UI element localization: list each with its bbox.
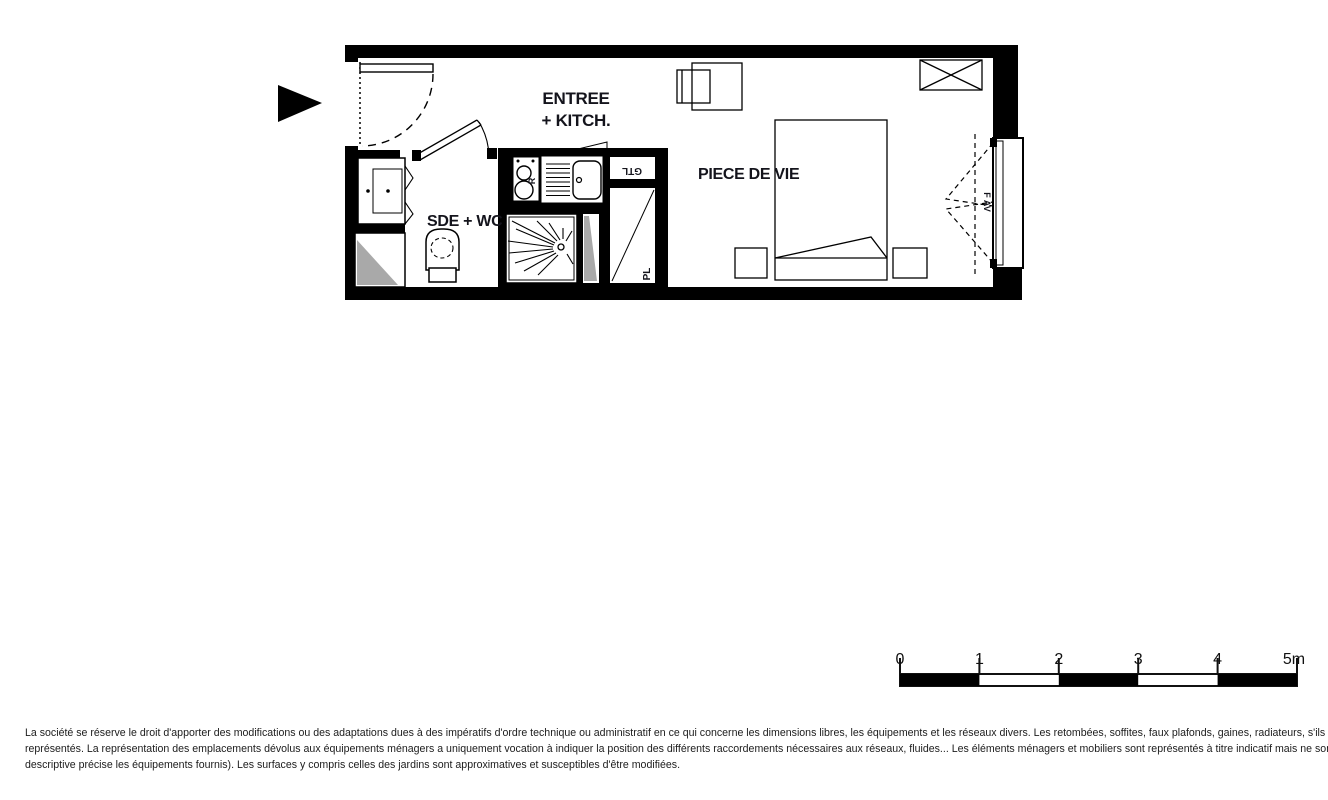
entry-door-swing-arc [362, 74, 433, 146]
disclaimer-line-1: La société se réserve le droit d'apporte… [25, 726, 1285, 742]
scale-bar-ticks [900, 658, 1297, 675]
vanity-tap-right [386, 189, 390, 193]
wardrobe-crossed-box [920, 60, 982, 90]
scale-num-1: 1 [975, 651, 984, 668]
shower-tray [506, 214, 577, 283]
sink-basin [573, 161, 601, 199]
entry-door-leaf [360, 64, 433, 72]
wall-right-upper [993, 45, 1018, 138]
label-entree-line1: ENTREE [542, 89, 609, 108]
window-frame [993, 138, 1023, 268]
wall-under-vanity-bar [355, 224, 405, 233]
scale-num-3: 3 [1134, 651, 1143, 668]
disclaimer-line-2: représentés. La représentation des empla… [25, 742, 1285, 758]
scale-bar-numbers: 0 1 2 3 4 5m [896, 651, 1306, 668]
disclaimer-line-3: descriptive précise les équipements four… [25, 758, 1285, 774]
scale-num-4: 4 [1213, 651, 1222, 668]
label-piece-de-vie: PIECE DE VIE [698, 166, 800, 183]
floor-plan: ENTREE + KITCH. PIECE DE VIE SDE + WC GT… [0, 0, 1328, 800]
vanity-unit [358, 158, 405, 224]
vanity-tap-left [366, 189, 370, 193]
label-gtl: GTL [622, 165, 642, 176]
scale-bar: 0 1 2 3 4 5m [896, 651, 1306, 686]
scale-segment-0-1 [900, 674, 979, 686]
label-pl: PL [642, 268, 653, 281]
wall-top [345, 45, 1018, 58]
entrance-arrow-icon [278, 85, 322, 122]
scale-num-5m: 5m [1283, 651, 1305, 668]
bathroom-door [416, 120, 489, 160]
scale-num-0: 0 [896, 651, 905, 668]
scale-segment-2-3 [1059, 674, 1138, 686]
scale-num-2: 2 [1054, 651, 1063, 668]
wall-bottom [345, 287, 1022, 300]
label-sde-wc: SDE + WC [427, 213, 503, 230]
nightstand-right [893, 248, 927, 278]
label-cooktop-r: R [527, 177, 537, 184]
nightstand-left [735, 248, 767, 278]
disclaimer: La société se réserve le droit d'apporte… [25, 726, 1285, 773]
cooktop-knob-left [517, 160, 520, 163]
entry-door [360, 62, 433, 147]
cooktop-knob-right [532, 160, 535, 163]
label-entree-line2: + KITCH. [542, 111, 611, 130]
toilet-tank [429, 268, 456, 282]
bathroom-door-leaf [416, 120, 481, 160]
wall-left-top-stub [345, 45, 358, 62]
bed [775, 120, 887, 280]
label-window-fav: F AV [982, 192, 992, 212]
scale-segment-4-5 [1218, 674, 1297, 686]
